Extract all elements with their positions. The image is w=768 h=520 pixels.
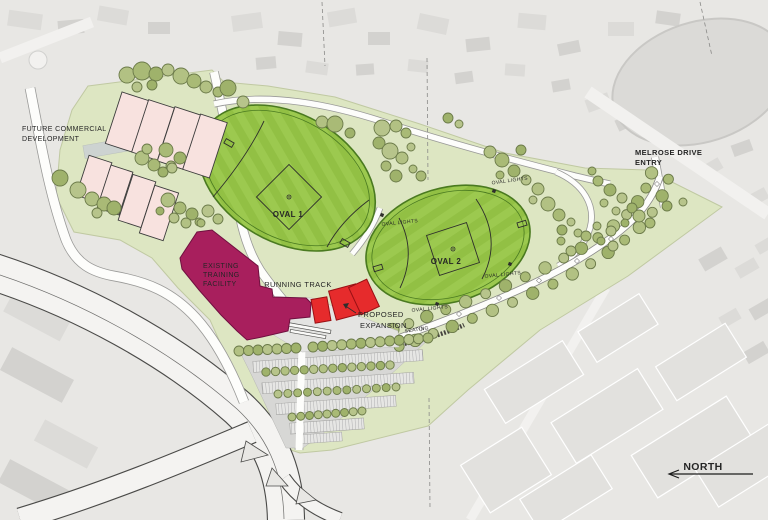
- tree: [366, 338, 376, 348]
- tree: [107, 201, 121, 215]
- tree: [467, 313, 477, 323]
- tree: [353, 385, 361, 393]
- tree: [213, 214, 223, 224]
- tree: [539, 262, 551, 274]
- tree: [92, 208, 102, 218]
- tree: [407, 143, 415, 151]
- tree: [323, 410, 331, 418]
- tree: [541, 197, 555, 211]
- tree: [567, 218, 575, 226]
- tree: [284, 389, 292, 397]
- tree: [606, 226, 616, 236]
- tree: [244, 346, 254, 356]
- tree: [557, 237, 565, 245]
- tree: [147, 80, 157, 90]
- tree: [119, 67, 135, 83]
- tree: [290, 366, 298, 374]
- tree: [621, 219, 629, 227]
- tree: [604, 184, 616, 196]
- tree: [516, 145, 526, 155]
- tree: [332, 409, 340, 417]
- tree: [459, 295, 471, 307]
- tree: [70, 182, 86, 198]
- tree: [167, 163, 177, 173]
- masterplan-svg: Sports precinct site masterplan FUTURE C…: [0, 0, 768, 520]
- tree: [633, 221, 645, 233]
- tree: [374, 120, 390, 136]
- tree: [329, 364, 337, 372]
- label-proposed-2: EXPANSION: [360, 321, 407, 330]
- tree: [597, 237, 605, 245]
- tree: [142, 144, 152, 154]
- tree: [641, 183, 651, 193]
- tree: [187, 74, 201, 88]
- tree: [566, 268, 578, 280]
- tree: [645, 218, 655, 228]
- tree: [381, 161, 391, 171]
- tree: [234, 346, 244, 356]
- tree: [358, 407, 366, 415]
- tree: [337, 340, 347, 350]
- tree: [181, 218, 191, 228]
- tree: [316, 116, 328, 128]
- tree: [617, 193, 627, 203]
- tree: [508, 165, 520, 177]
- tree: [392, 383, 400, 391]
- tree: [376, 361, 384, 369]
- site-masterplan: Sports precinct site masterplan FUTURE C…: [0, 0, 768, 520]
- label-running-track: RUNNING TRACK: [264, 280, 332, 289]
- tree: [645, 167, 657, 179]
- tree: [52, 170, 68, 186]
- tree: [159, 143, 173, 157]
- tree: [333, 387, 341, 395]
- tree: [156, 207, 164, 215]
- tree: [520, 272, 530, 282]
- tree: [375, 337, 385, 347]
- tree: [529, 196, 537, 204]
- tree: [346, 339, 356, 349]
- tree: [291, 343, 301, 353]
- tree: [499, 280, 511, 292]
- tree: [662, 201, 672, 211]
- label-melrose-2: ENTRY: [635, 158, 662, 167]
- label-existing-3: FACILITY: [203, 281, 237, 288]
- tree: [262, 368, 270, 376]
- tree: [401, 128, 411, 138]
- tree: [274, 390, 282, 398]
- tree: [338, 363, 346, 371]
- tree: [348, 363, 356, 371]
- tree: [394, 335, 404, 345]
- tree: [526, 287, 538, 299]
- tree: [663, 174, 673, 184]
- tree: [443, 113, 453, 123]
- tree: [548, 279, 558, 289]
- tree: [553, 209, 565, 221]
- tree: [197, 219, 205, 227]
- tree: [341, 409, 349, 417]
- tree: [174, 202, 186, 214]
- tree: [647, 207, 657, 217]
- label-melrose-1: MELROSE DRIVE: [635, 148, 702, 157]
- tree: [620, 235, 630, 245]
- tree: [409, 165, 417, 173]
- tree: [600, 199, 608, 207]
- tree: [446, 320, 458, 332]
- tree: [588, 167, 596, 175]
- tree: [162, 64, 174, 76]
- tree: [288, 413, 296, 421]
- tree: [612, 207, 620, 215]
- tree: [363, 385, 371, 393]
- tree: [132, 82, 142, 92]
- tree: [169, 213, 179, 223]
- label-proposed-1: PROPOSED: [358, 310, 404, 319]
- tree: [386, 361, 394, 369]
- tree: [133, 62, 151, 80]
- tree: [148, 159, 160, 171]
- tree: [237, 96, 249, 108]
- tree: [271, 367, 279, 375]
- tree: [508, 297, 518, 307]
- tree: [349, 408, 357, 416]
- tree: [200, 81, 212, 93]
- tree: [679, 198, 687, 206]
- tree: [313, 388, 321, 396]
- label-oval-2: OVAL 2: [431, 257, 462, 266]
- tree: [390, 120, 402, 132]
- tree: [345, 128, 355, 138]
- tree: [297, 412, 305, 420]
- tree: [294, 389, 302, 397]
- tree: [608, 241, 618, 251]
- label-north: NORTH: [683, 461, 722, 473]
- tree: [581, 231, 591, 241]
- tree: [343, 386, 351, 394]
- tree: [253, 345, 263, 355]
- tree: [496, 171, 504, 179]
- tree: [455, 120, 463, 128]
- tree: [282, 344, 292, 354]
- tree: [593, 176, 603, 186]
- tree: [416, 171, 426, 181]
- tree: [385, 336, 395, 346]
- tree: [382, 384, 390, 392]
- label-future-commercial-1: FUTURE COMMERCIAL: [22, 126, 107, 133]
- tree: [281, 367, 289, 375]
- tree: [382, 143, 398, 159]
- tree: [484, 146, 496, 158]
- tree: [174, 152, 186, 164]
- tree: [202, 205, 214, 217]
- tree: [149, 67, 163, 81]
- tree: [304, 388, 312, 396]
- tree: [220, 80, 236, 96]
- tree: [566, 246, 576, 256]
- tree: [161, 193, 175, 207]
- tree: [263, 345, 273, 355]
- label-existing-2: TRAINING: [203, 272, 240, 279]
- tree: [656, 190, 668, 202]
- tree: [314, 411, 322, 419]
- tree: [367, 362, 375, 370]
- tree: [306, 412, 314, 420]
- label-oval-1: OVAL 1: [273, 210, 304, 219]
- tree: [356, 338, 366, 348]
- tree: [404, 335, 414, 345]
- tree: [300, 366, 308, 374]
- tree: [495, 153, 509, 167]
- tree: [413, 334, 423, 344]
- tree: [319, 365, 327, 373]
- tree: [557, 225, 567, 235]
- tree: [357, 362, 365, 370]
- tree: [327, 341, 337, 351]
- label-future-commercial-2: DEVELOPMENT: [22, 136, 80, 143]
- tree: [396, 152, 408, 164]
- tree: [423, 333, 433, 343]
- tree: [532, 183, 544, 195]
- label-existing-1: EXISTING: [203, 263, 239, 270]
- tree: [593, 222, 601, 230]
- tree: [318, 341, 328, 351]
- tree: [586, 259, 596, 269]
- proposed-expansion-building: [311, 297, 331, 323]
- tree: [575, 242, 587, 254]
- tree: [323, 387, 331, 395]
- tree: [486, 304, 498, 316]
- tree: [272, 344, 282, 354]
- tree: [308, 342, 318, 352]
- tree: [633, 210, 645, 222]
- tree: [390, 170, 402, 182]
- tree: [481, 289, 491, 299]
- tree: [372, 384, 380, 392]
- tree: [327, 116, 343, 132]
- tree: [309, 365, 317, 373]
